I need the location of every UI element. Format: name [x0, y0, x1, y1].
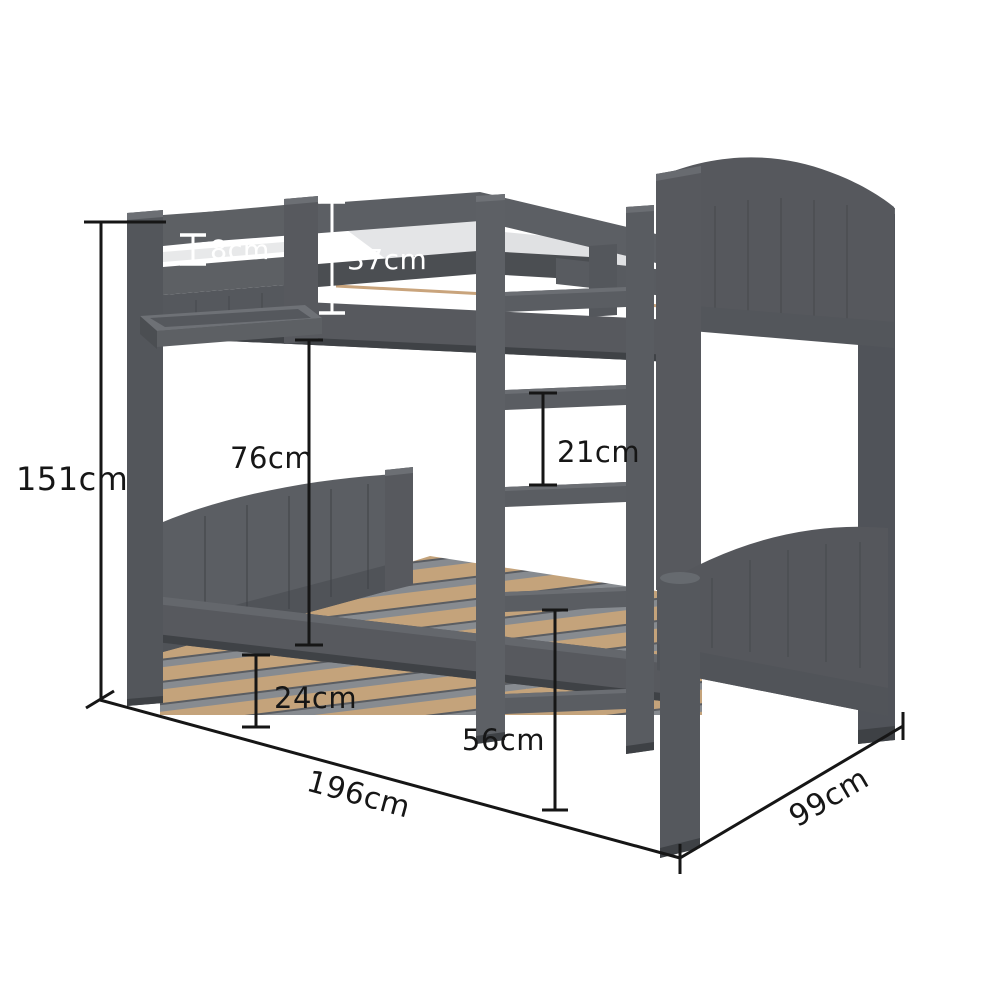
- headboard-left-post: [656, 166, 701, 590]
- lower-headboard: [657, 527, 895, 858]
- upper-left-guard: [140, 196, 322, 349]
- ladder-right-rail: [626, 205, 654, 754]
- front-right-leg: [660, 572, 700, 858]
- dimension-length: 196cm: [100, 700, 680, 874]
- dimension-label: 21cm: [557, 435, 640, 469]
- diagram-canvas: 151cm 8cm 37cm 76cm 21cm: [0, 0, 1000, 1000]
- dimension-label: 76cm: [230, 441, 313, 475]
- ladder-left-rail: [476, 194, 505, 744]
- dimension-label: 151cm: [16, 460, 128, 498]
- dimension-label: 99cm: [783, 761, 875, 835]
- dimension-label: 24cm: [274, 681, 357, 715]
- dimension-label: 196cm: [303, 764, 414, 825]
- dimension-guard-gap: 8cm: [180, 235, 270, 266]
- front-left-post: [127, 210, 163, 706]
- dimension-label: 8cm: [210, 235, 270, 266]
- dimension-label: 37cm: [347, 243, 427, 276]
- footboard-back-post: [385, 467, 413, 592]
- bunk-bed-dimension-diagram: 151cm 8cm 37cm 76cm 21cm: [0, 0, 1000, 1000]
- dimension-label: 56cm: [462, 723, 545, 757]
